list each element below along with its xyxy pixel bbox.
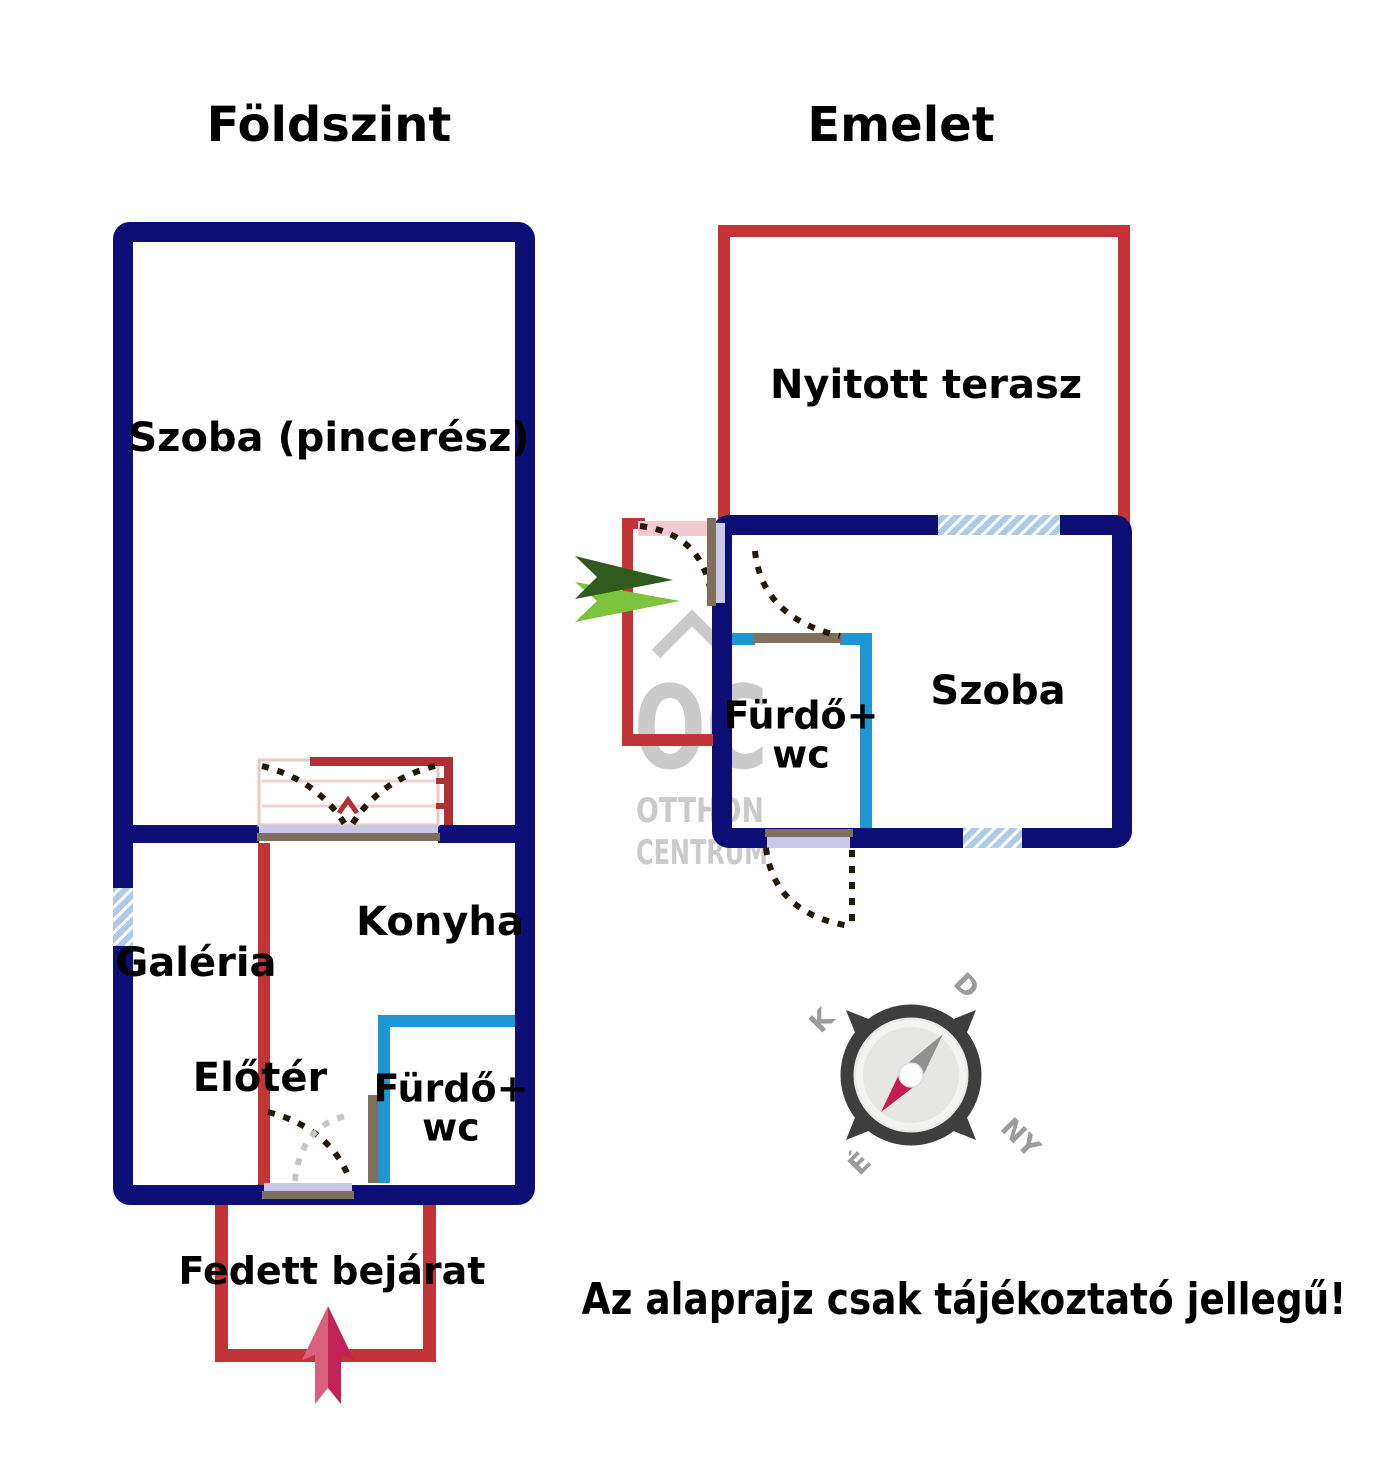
floor-plan-page: OC OTTHON CENTRUM [0, 0, 1400, 1480]
room-label-upper-szoba: Szoba [930, 671, 1065, 711]
room-label-ground-furdo-line2: wc [373, 1108, 528, 1147]
door-threshold [264, 1183, 352, 1191]
compass-icon [846, 1010, 976, 1140]
door-threshold [765, 829, 853, 837]
room-label-upper-furdo-line2: wc [723, 735, 878, 774]
room-label-ground-furdo-line1: Fürdő+ [373, 1069, 528, 1108]
room-label-galeria: Galéria [115, 943, 276, 983]
bathroom-door-arc-icon [755, 551, 840, 636]
entrance-arrow-icon [302, 1306, 354, 1404]
stair-icon [259, 757, 453, 825]
room-label-eloter: Előtér [193, 1058, 328, 1098]
door-jamb [716, 523, 725, 603]
window-icon [938, 515, 1060, 535]
room-label-ground-furdo-wc: Fürdő+ wc [373, 1069, 528, 1147]
room-label-upper-furdo-line1: Fürdő+ [723, 696, 878, 735]
disclaimer-text: Az alaprajz csak tájékoztató jellegű! [582, 1278, 1347, 1322]
room-label-szoba-pinceresz: Szoba (pincerész) [128, 418, 529, 458]
door-threshold [257, 833, 440, 841]
window-icon [963, 828, 1022, 848]
door-threshold [259, 825, 438, 833]
ground-floor-outer-wall [123, 232, 525, 1195]
interior-wall [258, 843, 270, 1185]
room-label-konyha: Konyha [356, 902, 524, 942]
upper-floor-title: Emelet [807, 101, 994, 149]
room-label-nyitott-terasz: Nyitott terasz [770, 365, 1082, 405]
door-arc-icon [766, 848, 850, 926]
window-icon [113, 888, 133, 946]
ground-floor-title: Földszint [207, 101, 452, 149]
door-threshold [767, 837, 850, 848]
watermark-line1: OTTHON [636, 791, 764, 831]
ground-floor-plan [113, 232, 535, 1404]
door-threshold [262, 1191, 354, 1199]
entrance-door-arc-icon [268, 1112, 350, 1180]
entry-door-arc-icon [640, 526, 712, 602]
door-jamb [707, 518, 716, 606]
covered-entrance-label: Fedett bejárat [179, 1252, 486, 1290]
room-label-upper-furdo-wc: Fürdő+ wc [723, 696, 878, 774]
